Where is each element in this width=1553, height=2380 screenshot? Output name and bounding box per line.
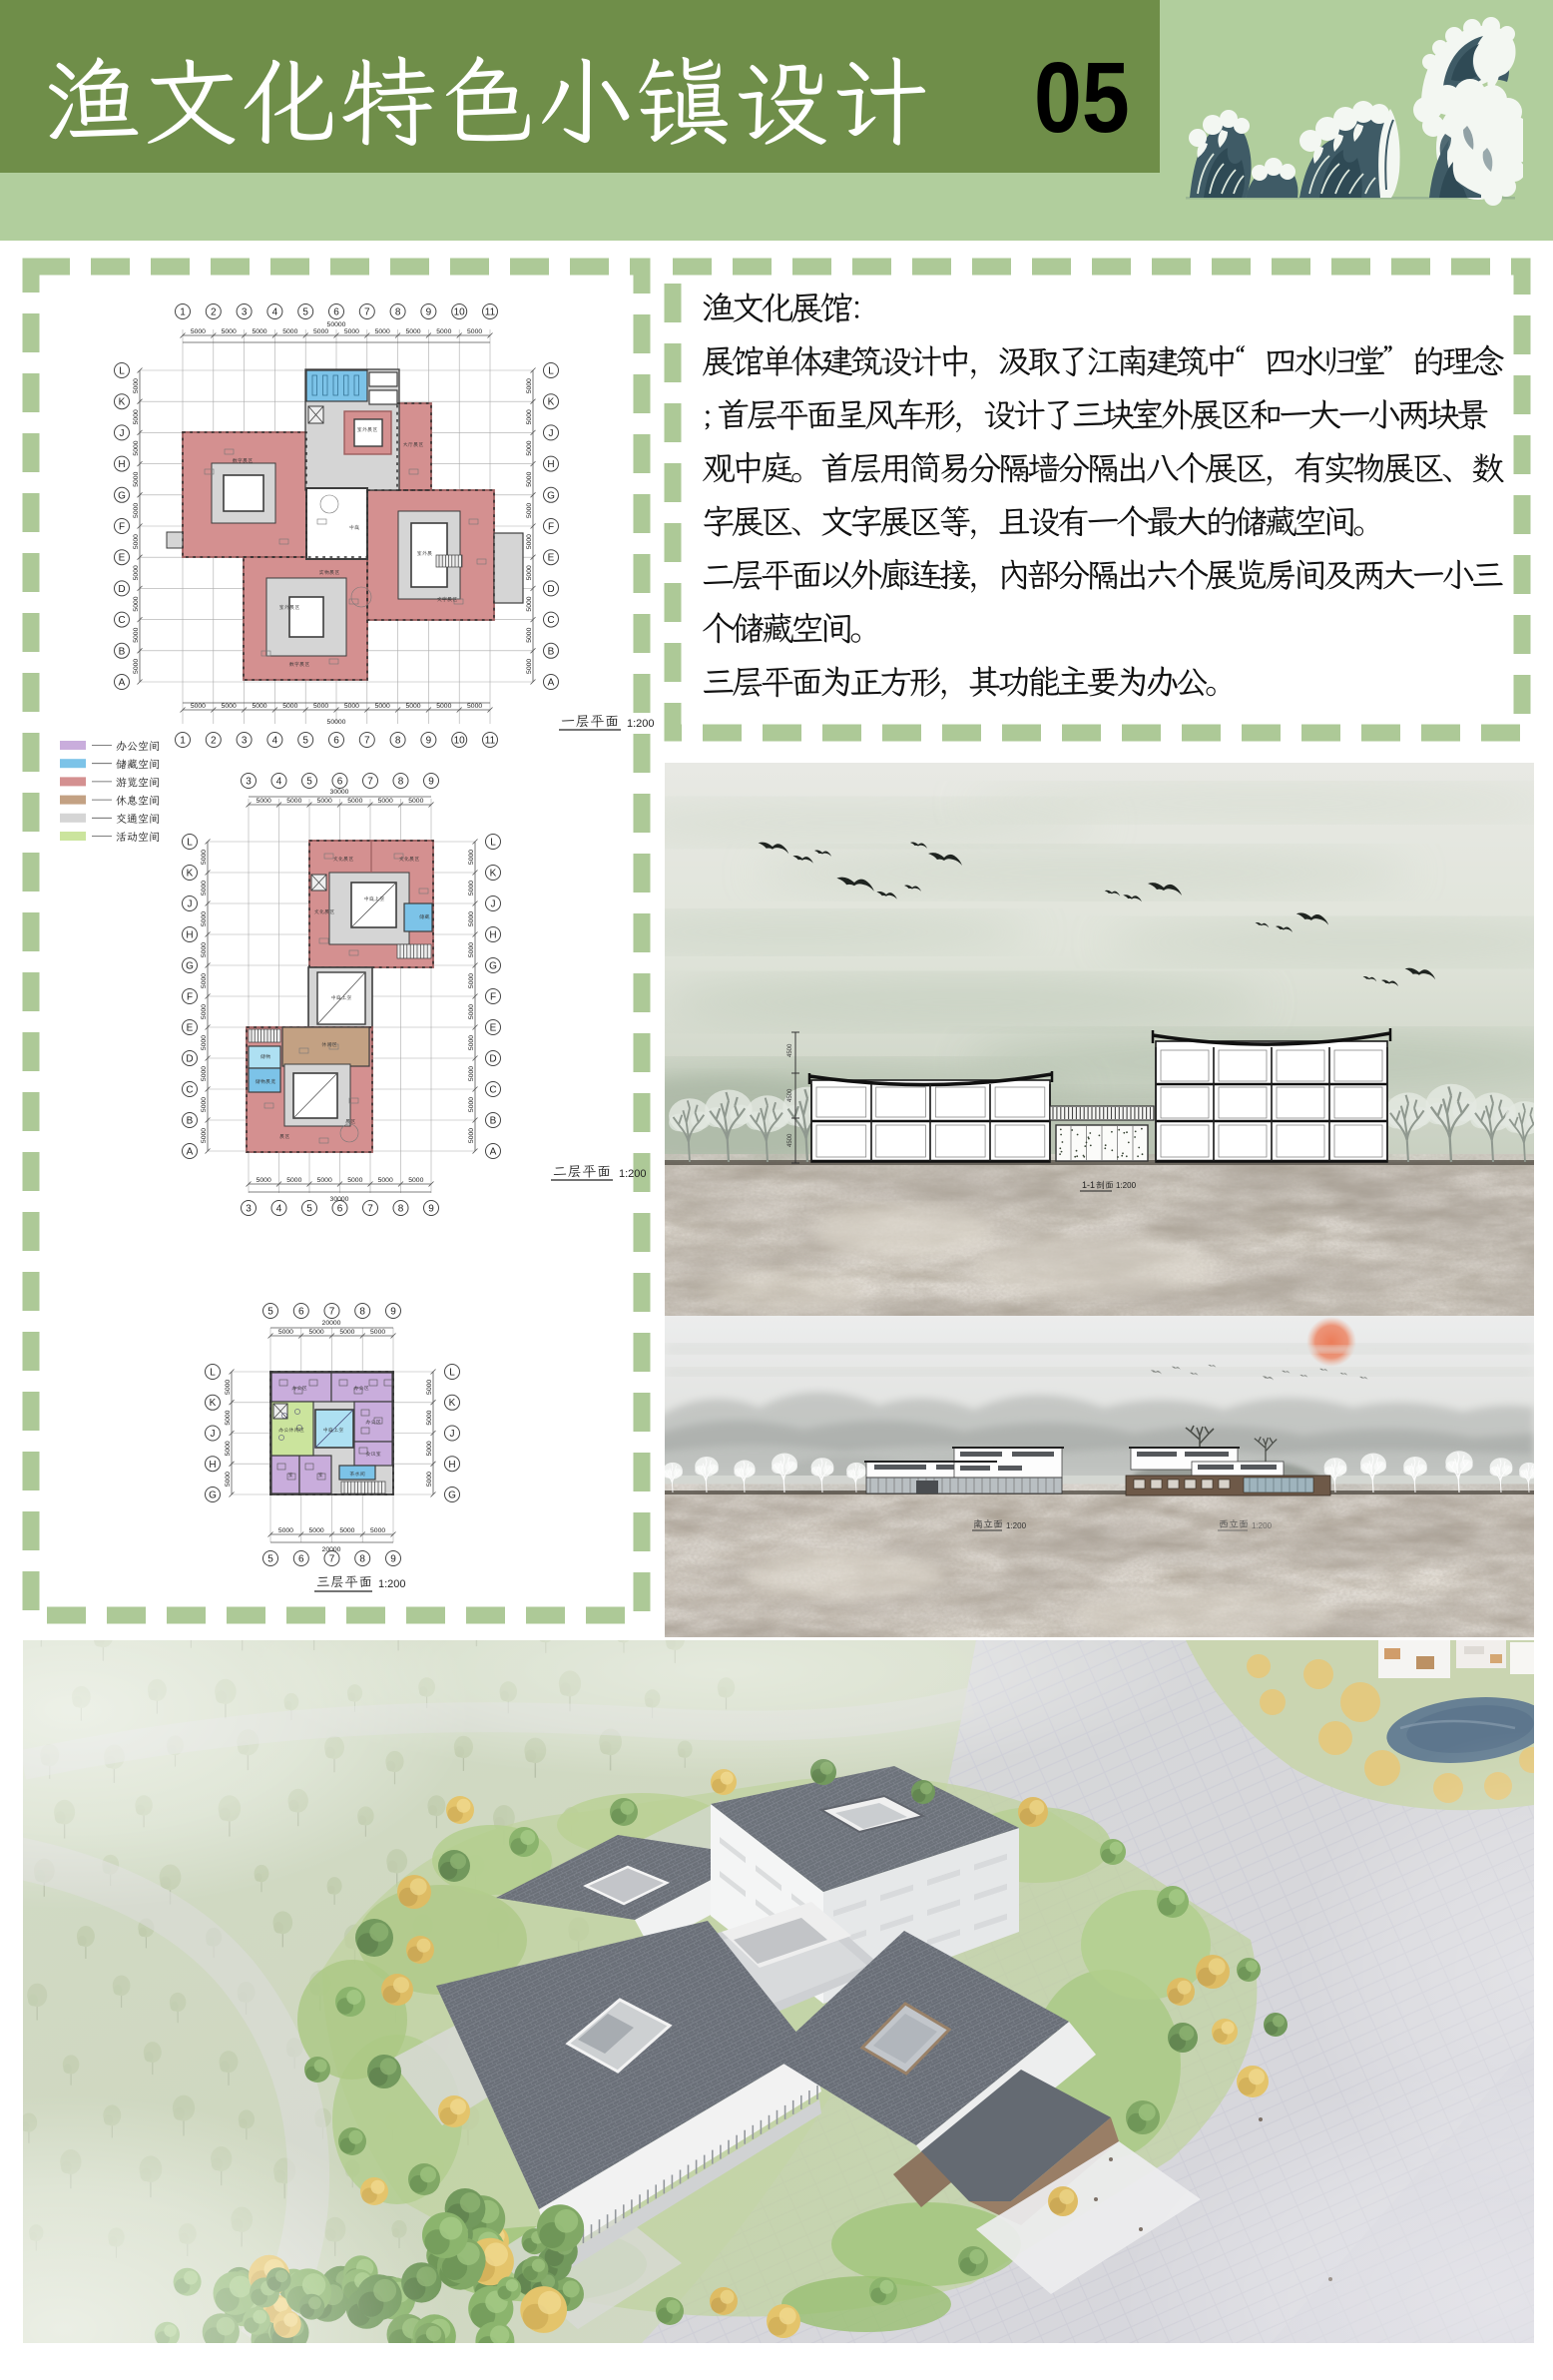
svg-text:5000: 5000 [339, 1527, 354, 1534]
svg-text:4500: 4500 [787, 1088, 793, 1102]
svg-text:B: B [187, 1116, 194, 1127]
svg-text:G: G [448, 1490, 456, 1501]
svg-text:5000: 5000 [278, 1527, 293, 1534]
svg-text:5000: 5000 [286, 1177, 301, 1184]
svg-text:J: J [188, 899, 193, 910]
svg-text:3: 3 [246, 1204, 252, 1215]
svg-text:1:200: 1:200 [619, 1168, 647, 1180]
svg-text:1:200: 1:200 [1116, 1181, 1137, 1190]
svg-text:C: C [186, 1085, 193, 1096]
svg-text:5000: 5000 [201, 973, 208, 988]
svg-text:5000: 5000 [426, 1410, 433, 1425]
svg-text:5000: 5000 [370, 1329, 385, 1336]
svg-text:5000: 5000 [468, 1128, 475, 1143]
svg-text:5000: 5000 [468, 942, 475, 957]
svg-text:5000: 5000 [286, 798, 301, 805]
svg-text:B: B [490, 1116, 497, 1127]
svg-text:5000: 5000 [347, 1177, 362, 1184]
svg-text:30000: 30000 [330, 1196, 349, 1203]
svg-text:5000: 5000 [347, 798, 362, 805]
svg-text:5000: 5000 [257, 798, 271, 805]
svg-text:H: H [448, 1460, 455, 1471]
svg-text:4500: 4500 [787, 1043, 793, 1057]
svg-text:8: 8 [398, 1204, 404, 1215]
svg-text:5000: 5000 [201, 1066, 208, 1081]
svg-text:J: J [450, 1429, 455, 1440]
svg-text:D: D [186, 1054, 193, 1065]
svg-text:5000: 5000 [378, 1177, 393, 1184]
svg-text:5000: 5000 [468, 881, 475, 895]
svg-text:L: L [187, 838, 193, 849]
svg-text:5000: 5000 [468, 1097, 475, 1112]
svg-text:5000: 5000 [201, 881, 208, 895]
svg-text:7: 7 [329, 1554, 335, 1565]
svg-text:7: 7 [367, 1204, 373, 1215]
svg-text:5000: 5000 [201, 1097, 208, 1112]
svg-text:5: 5 [267, 1307, 273, 1318]
svg-text:G: G [489, 961, 497, 972]
svg-text:C: C [489, 1085, 496, 1096]
svg-text:4500: 4500 [787, 1133, 793, 1147]
svg-text:5000: 5000 [201, 911, 208, 926]
svg-text:7: 7 [367, 777, 373, 788]
svg-text:5000: 5000 [201, 850, 208, 865]
svg-text:5000: 5000 [225, 1410, 232, 1425]
svg-text:5000: 5000 [257, 1177, 271, 1184]
svg-text:5: 5 [267, 1554, 273, 1565]
svg-text:1-1: 1-1 [1082, 1180, 1095, 1190]
svg-text:5000: 5000 [201, 1128, 208, 1143]
svg-text:4: 4 [276, 1204, 282, 1215]
svg-text:6: 6 [337, 1204, 343, 1215]
svg-text:5000: 5000 [370, 1527, 385, 1534]
svg-text:5000: 5000 [278, 1329, 293, 1336]
svg-text:K: K [490, 869, 497, 880]
svg-text:L: L [490, 838, 496, 849]
svg-text:L: L [210, 1368, 216, 1379]
svg-text:5000: 5000 [468, 1066, 475, 1081]
svg-text:5000: 5000 [309, 1329, 324, 1336]
svg-text:5000: 5000 [339, 1329, 354, 1336]
svg-text:20000: 20000 [322, 1320, 341, 1327]
svg-text:D: D [489, 1054, 496, 1065]
svg-text:F: F [187, 992, 193, 1003]
svg-text:8: 8 [398, 777, 404, 788]
svg-text:H: H [209, 1460, 216, 1471]
svg-text:5000: 5000 [468, 1035, 475, 1050]
svg-text:6: 6 [337, 777, 343, 788]
svg-text:A: A [187, 1147, 194, 1158]
svg-text:5: 5 [306, 777, 312, 788]
svg-text:5000: 5000 [201, 942, 208, 957]
svg-text:5000: 5000 [317, 1177, 332, 1184]
svg-text:J: J [491, 899, 496, 910]
svg-text:5000: 5000 [225, 1380, 232, 1395]
svg-text:5: 5 [306, 1204, 312, 1215]
svg-text:5000: 5000 [408, 1177, 423, 1184]
svg-text:5000: 5000 [309, 1527, 324, 1534]
svg-text:G: G [209, 1490, 217, 1501]
svg-text:5000: 5000 [468, 1004, 475, 1019]
svg-text:9: 9 [390, 1307, 396, 1318]
svg-text:5000: 5000 [225, 1441, 232, 1456]
svg-text:G: G [186, 961, 194, 972]
svg-text:30000: 30000 [330, 789, 349, 796]
svg-text:5000: 5000 [378, 798, 393, 805]
svg-text:8: 8 [359, 1307, 365, 1318]
svg-text:5000: 5000 [468, 850, 475, 865]
svg-text:6: 6 [298, 1554, 304, 1565]
svg-text:H: H [489, 930, 496, 941]
svg-text:9: 9 [428, 777, 434, 788]
svg-text:J: J [211, 1429, 216, 1440]
svg-text:5000: 5000 [468, 911, 475, 926]
svg-text:5000: 5000 [426, 1380, 433, 1395]
svg-text:5000: 5000 [426, 1441, 433, 1456]
svg-text:3: 3 [246, 777, 252, 788]
svg-text:1:200: 1:200 [378, 1578, 406, 1590]
svg-text:K: K [449, 1398, 456, 1409]
svg-text:20000: 20000 [322, 1546, 341, 1553]
svg-text:L: L [449, 1368, 455, 1379]
svg-text:H: H [186, 930, 193, 941]
svg-text:6: 6 [298, 1307, 304, 1318]
svg-text:5000: 5000 [468, 973, 475, 988]
svg-text:9: 9 [390, 1554, 396, 1565]
svg-text:5000: 5000 [201, 1035, 208, 1050]
svg-text:K: K [210, 1398, 217, 1409]
svg-text:5000: 5000 [201, 1004, 208, 1019]
svg-text:F: F [490, 992, 496, 1003]
svg-text:A: A [490, 1147, 497, 1158]
svg-text:K: K [187, 869, 194, 880]
svg-text:9: 9 [428, 1204, 434, 1215]
svg-text:1:200: 1:200 [1252, 1521, 1273, 1530]
svg-text:E: E [490, 1023, 497, 1034]
svg-text:7: 7 [329, 1307, 335, 1318]
svg-text:5000: 5000 [317, 798, 332, 805]
svg-text:8: 8 [359, 1554, 365, 1565]
svg-text:E: E [187, 1023, 194, 1034]
svg-text:5000: 5000 [426, 1472, 433, 1487]
svg-text:4: 4 [276, 777, 282, 788]
svg-text:1:200: 1:200 [1006, 1521, 1027, 1530]
svg-text:5000: 5000 [408, 798, 423, 805]
svg-text:5000: 5000 [225, 1472, 232, 1487]
